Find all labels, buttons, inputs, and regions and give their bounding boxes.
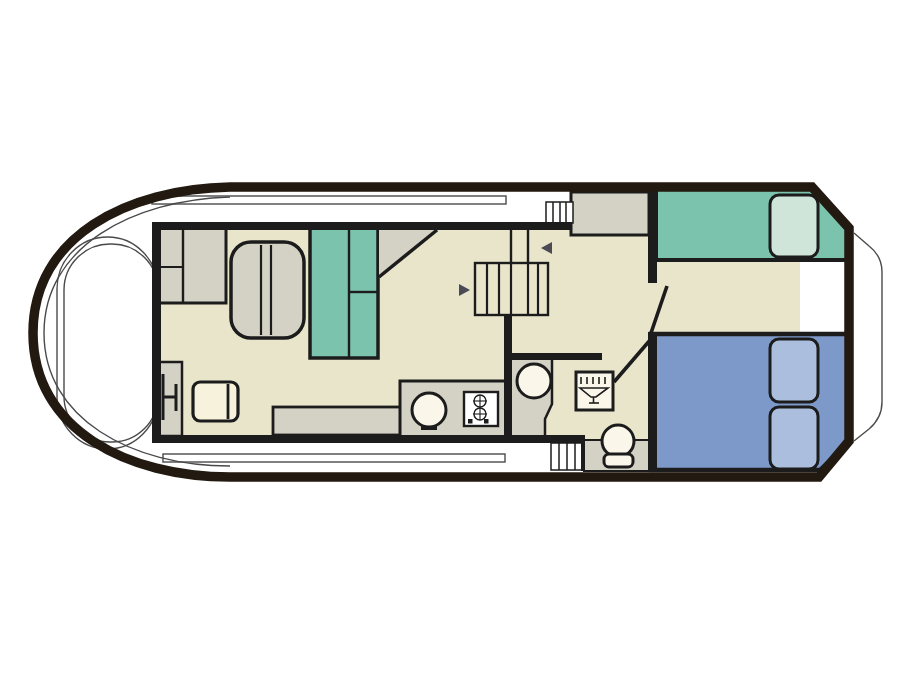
blue-pillow-2 <box>770 407 818 469</box>
stove-knob <box>484 419 489 424</box>
double-bed-blue <box>651 334 850 470</box>
basin-pedestal <box>509 358 552 440</box>
shower-tray <box>576 372 613 410</box>
swim-platform-contour <box>854 233 882 441</box>
galley-counter <box>400 381 508 440</box>
galley-stove <box>464 392 498 426</box>
chair <box>193 382 238 421</box>
deck-steps-bottom <box>551 443 582 470</box>
blue-pillow-1 <box>770 339 818 402</box>
wall-bathroom-top <box>508 353 602 360</box>
wardrobe-cabinet <box>157 226 226 303</box>
wall-aft-lower <box>648 332 657 472</box>
bottom-deck-rail <box>163 454 505 462</box>
deck-locker <box>571 192 649 235</box>
sink-tap-icon <box>421 426 437 430</box>
wall-bottom <box>152 435 585 443</box>
deck-steps-top <box>546 202 573 223</box>
boat-floorplan-svg <box>0 0 899 674</box>
bow-coaming-inner <box>64 244 158 442</box>
toilet <box>602 425 634 467</box>
wall-top <box>152 222 572 230</box>
wall-aft-upper <box>648 185 657 283</box>
aft-cabin-floor <box>653 260 800 336</box>
wall-front <box>152 222 161 443</box>
teal-pillow <box>770 195 818 257</box>
galley-sink <box>412 393 446 427</box>
side-bench <box>273 407 402 435</box>
wash-basin <box>517 364 551 398</box>
dinette-table <box>231 242 304 338</box>
stove-knob <box>468 419 473 424</box>
bow-coaming-outer <box>57 237 158 449</box>
wall-steps-stub <box>581 440 585 471</box>
top-deck-rail <box>152 196 506 204</box>
wall-partition <box>504 314 512 440</box>
floorplan-canvas <box>0 0 899 674</box>
dinette-bench-teal <box>310 226 378 358</box>
